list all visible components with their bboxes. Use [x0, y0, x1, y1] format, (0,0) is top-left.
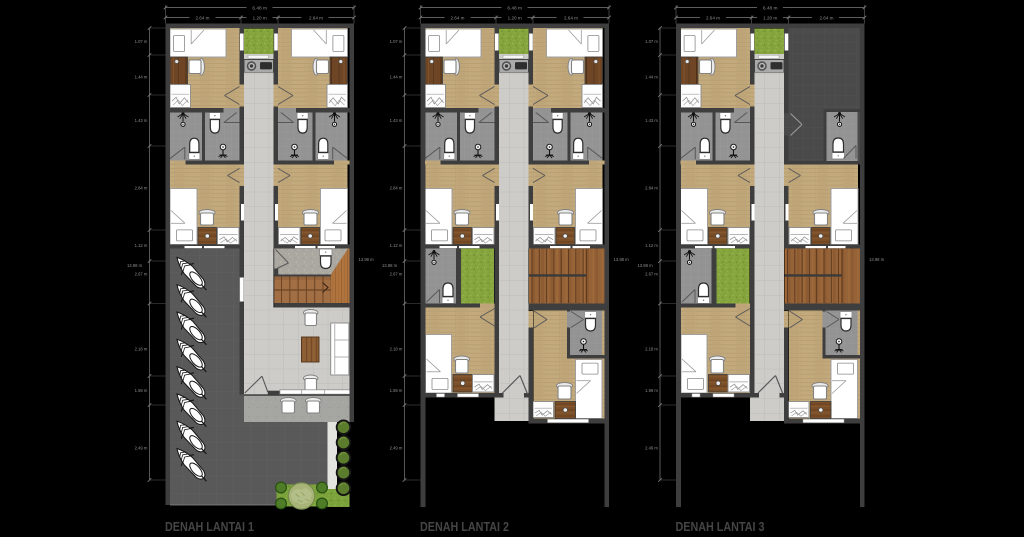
svg-text:1.12 m: 1.12 m: [390, 243, 403, 248]
svg-text:2.64 m: 2.64 m: [706, 16, 720, 21]
svg-text:6.48 m: 6.48 m: [252, 6, 267, 12]
svg-text:13.98 m: 13.98 m: [614, 257, 630, 262]
svg-text:2.67 m: 2.67 m: [645, 272, 658, 277]
svg-text:2.18 m: 2.18 m: [135, 347, 148, 352]
svg-text:2.64 m: 2.64 m: [819, 16, 833, 21]
svg-text:1.07 m: 1.07 m: [645, 39, 658, 44]
svg-text:13.98 m: 13.98 m: [359, 257, 375, 262]
svg-text:1.59 m: 1.59 m: [135, 388, 148, 393]
svg-text:6.48 m: 6.48 m: [507, 6, 522, 12]
svg-text:1.59 m: 1.59 m: [645, 388, 658, 393]
svg-text:1.44 m: 1.44 m: [135, 75, 148, 80]
svg-text:2.84 m: 2.84 m: [135, 186, 148, 191]
svg-text:2.18 m: 2.18 m: [390, 347, 403, 352]
svg-text:DENAH LANTAI 2: DENAH LANTAI 2: [420, 520, 509, 534]
svg-text:1.59 m: 1.59 m: [390, 388, 403, 393]
svg-text:1.07 m: 1.07 m: [390, 39, 403, 44]
svg-text:13.98 m: 13.98 m: [869, 257, 885, 262]
svg-text:1.44 m: 1.44 m: [645, 75, 658, 80]
svg-text:13.98 m: 13.98 m: [127, 263, 143, 268]
svg-text:2.64 m: 2.64 m: [309, 16, 323, 21]
svg-text:2.64 m: 2.64 m: [450, 16, 464, 21]
svg-text:2.67 m: 2.67 m: [135, 272, 148, 277]
svg-text:DENAH LANTAI 1: DENAH LANTAI 1: [165, 520, 254, 534]
svg-text:2.49 m: 2.49 m: [135, 446, 148, 451]
svg-text:1.44 m: 1.44 m: [390, 75, 403, 80]
svg-text:1.20 m: 1.20 m: [763, 16, 777, 21]
svg-text:2.67 m: 2.67 m: [390, 272, 403, 277]
svg-text:13.98 m: 13.98 m: [382, 263, 398, 268]
svg-text:1.43 m: 1.43 m: [645, 118, 658, 123]
svg-text:1.12 m: 1.12 m: [645, 243, 658, 248]
svg-text:1.12 m: 1.12 m: [135, 243, 148, 248]
svg-text:1.20 m: 1.20 m: [508, 16, 522, 21]
svg-text:6.48 m: 6.48 m: [763, 6, 778, 12]
svg-text:2.49 m: 2.49 m: [645, 446, 658, 451]
svg-text:2.64 m: 2.64 m: [564, 16, 578, 21]
svg-text:2.18 m: 2.18 m: [645, 347, 658, 352]
svg-text:13.98 m: 13.98 m: [637, 263, 653, 268]
svg-text:1.07 m: 1.07 m: [135, 39, 148, 44]
svg-text:2.84 m: 2.84 m: [390, 186, 403, 191]
svg-text:2.49 m: 2.49 m: [390, 446, 403, 451]
svg-text:1.43 m: 1.43 m: [135, 118, 148, 123]
svg-text:DENAH LANTAI 3: DENAH LANTAI 3: [676, 520, 765, 534]
svg-text:1.20 m: 1.20 m: [253, 16, 267, 21]
svg-text:2.84 m: 2.84 m: [645, 186, 658, 191]
svg-text:1.43 m: 1.43 m: [390, 118, 403, 123]
svg-text:2.64 m: 2.64 m: [195, 16, 209, 21]
